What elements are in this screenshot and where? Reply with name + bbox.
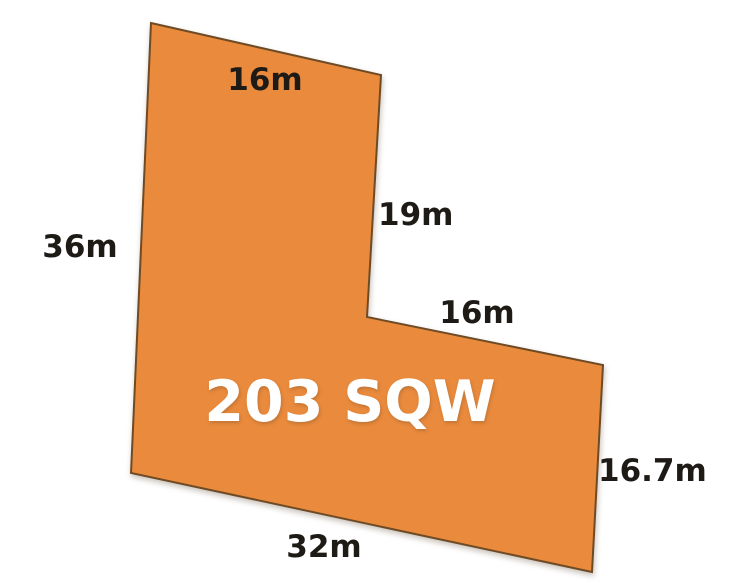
dimension-label-top: 16m xyxy=(227,62,302,98)
lot-plan-canvas: 16m 19m 36m 16m 16.7m 32m 203 SQW xyxy=(0,0,750,583)
lot-diagram: 16m 19m 36m 16m 16.7m 32m 203 SQW xyxy=(0,0,750,583)
dimension-label-right-lower: 16.7m xyxy=(598,453,707,489)
dimension-label-left: 36m xyxy=(42,229,117,265)
lot-area-label: 203 SQW xyxy=(204,369,495,435)
dimension-label-right-upper: 19m xyxy=(378,197,453,233)
lot-polygon xyxy=(131,23,603,572)
dimension-label-bottom: 32m xyxy=(286,529,361,565)
dimension-label-notch: 16m xyxy=(439,295,514,331)
lot-shape-group xyxy=(131,23,603,572)
